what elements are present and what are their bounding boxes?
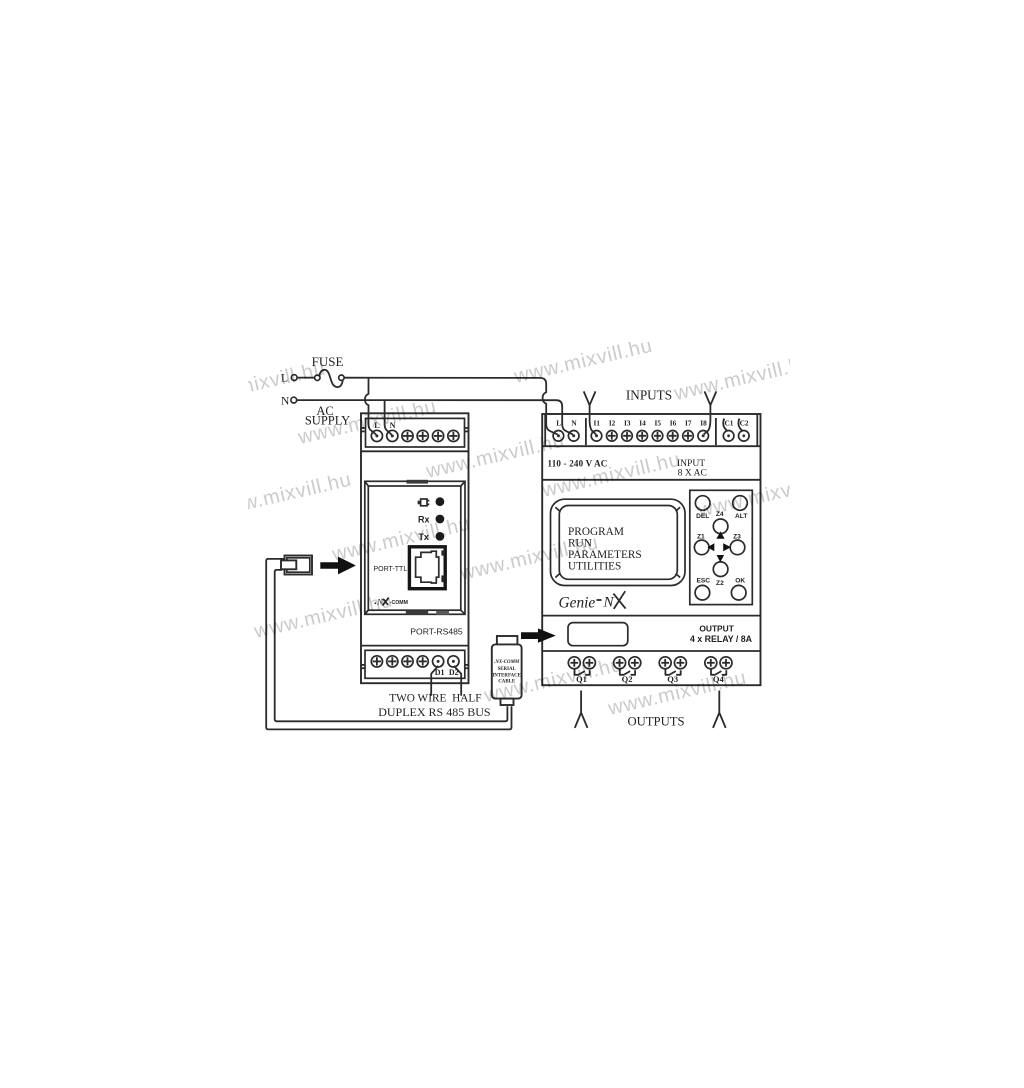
svg-text:UTILITIES: UTILITIES [568,561,621,573]
svg-text:ALT: ALT [735,513,747,520]
svg-text:SERIAL: SERIAL [498,667,517,672]
svg-text:I1: I1 [594,419,601,428]
svg-text:I4: I4 [639,419,646,428]
svg-text:INPUTS: INPUTS [626,387,672,402]
svg-text:N: N [603,595,615,611]
svg-text:C2: C2 [740,419,749,428]
svg-text:Z1: Z1 [697,534,705,541]
svg-text:L: L [556,419,561,428]
svg-text:Q2: Q2 [622,674,633,684]
svg-text:I8: I8 [700,419,707,428]
svg-text:.NX-COMM: .NX-COMM [494,660,520,665]
svg-text:ESC: ESC [697,577,711,584]
svg-text:TWO WIRE HALF: TWO WIRE HALF [389,693,481,705]
svg-text:OK: OK [735,577,745,584]
svg-text:OUTPUTS: OUTPUTS [627,714,684,728]
svg-text:Z2: Z2 [716,580,724,587]
svg-text:N: N [571,419,577,428]
svg-text:DUPLEX RS 485 BUS: DUPLEX RS 485 BUS [378,705,490,719]
svg-text:I7: I7 [685,419,692,428]
svg-text:OUTPUT: OUTPUT [699,624,734,634]
svg-text:Genie: Genie [559,595,596,612]
svg-text:I6: I6 [670,419,677,428]
svg-text:PORT-RS485: PORT-RS485 [410,627,463,637]
svg-text:I2: I2 [609,419,616,428]
svg-text:I3: I3 [624,419,631,428]
svg-text:PORT-TTL: PORT-TTL [374,566,408,573]
svg-text:Z3: Z3 [733,534,741,541]
svg-text:N: N [281,396,290,408]
svg-text:I5: I5 [655,419,662,428]
svg-text:C1: C1 [724,419,733,428]
svg-text:4 x RELAY / 8A: 4 x RELAY / 8A [690,634,753,644]
